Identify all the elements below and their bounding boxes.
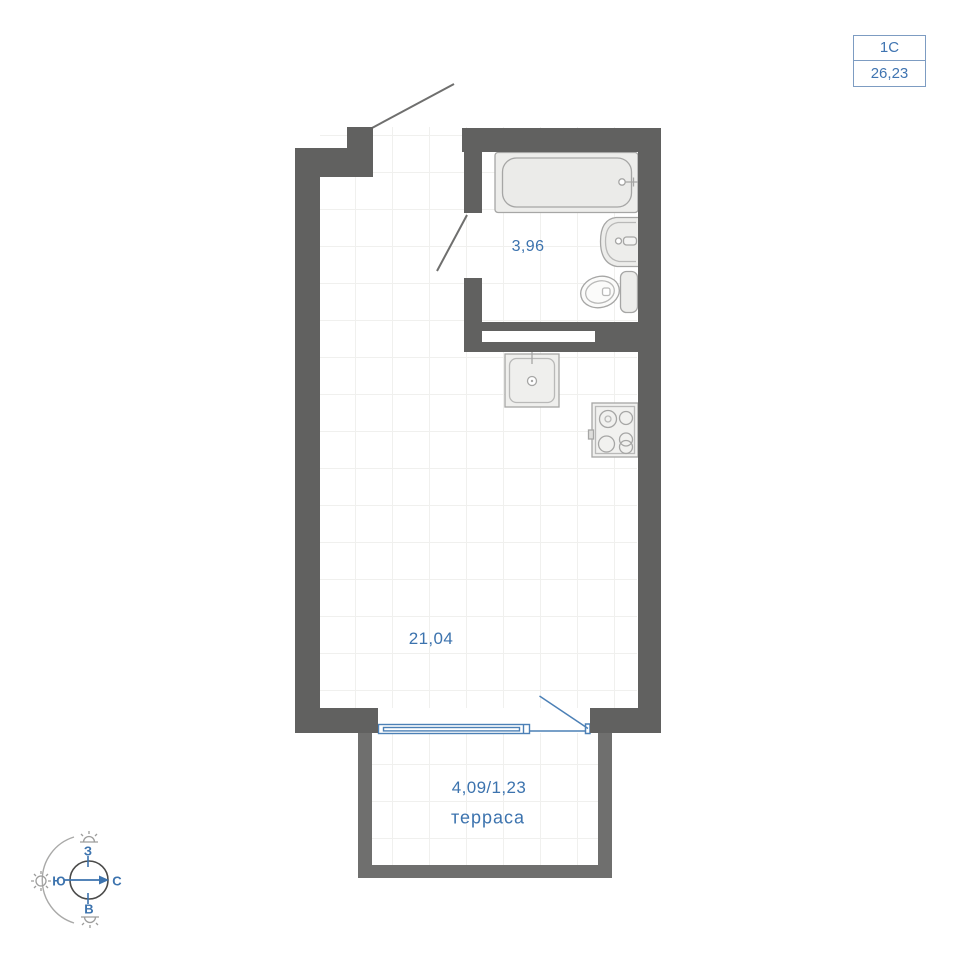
wall-top-left-bump (347, 127, 373, 177)
compass (31, 831, 109, 928)
sunset-icon (81, 917, 99, 928)
terrace-wall-left (358, 733, 372, 878)
sun-icon (31, 871, 51, 891)
terrace-door-icon (530, 696, 590, 734)
bathroom-door-swing (437, 215, 467, 271)
unit-total-area: 26,23 (854, 61, 925, 86)
unit-type: 1С (854, 36, 925, 61)
stove-icon (589, 403, 639, 457)
washbasin-icon (601, 218, 639, 267)
terrace-wall-bottom (358, 865, 612, 878)
bathroom-area-label: 3,96 (512, 238, 545, 256)
toilet-icon (577, 272, 637, 313)
living-area-label: 21,04 (409, 629, 454, 649)
wall-left (295, 148, 320, 733)
compass-south-label: Ю (52, 874, 65, 889)
wall-bathroom-bottom (464, 322, 638, 352)
terrace-area-label: 4,09/1,23 (452, 778, 527, 798)
sunrise-icon (80, 831, 98, 842)
floor-plan-page: 3,96 21,04 4,09/1,23 терраса З Ю С В 1С … (0, 0, 960, 960)
kitchen-sink-icon (505, 352, 559, 407)
wall-duct-slit (482, 331, 595, 342)
terrace-wall-right (598, 733, 612, 878)
compass-north-label: С (112, 874, 121, 889)
terrace-name-label: терраса (451, 808, 525, 829)
terrace-window-icon (379, 725, 530, 734)
wall-right (638, 128, 661, 733)
wall-bottom-right (590, 708, 661, 733)
compass-west-label: З (84, 844, 92, 859)
compass-east-label: В (84, 902, 93, 917)
wall-bathroom-left-upper (464, 152, 482, 213)
bathtub-icon (495, 153, 640, 213)
unit-info-card: 1С 26,23 (853, 35, 926, 87)
entry-door-swing (372, 84, 454, 128)
wall-bottom-left (295, 708, 378, 733)
wall-top (462, 128, 661, 152)
